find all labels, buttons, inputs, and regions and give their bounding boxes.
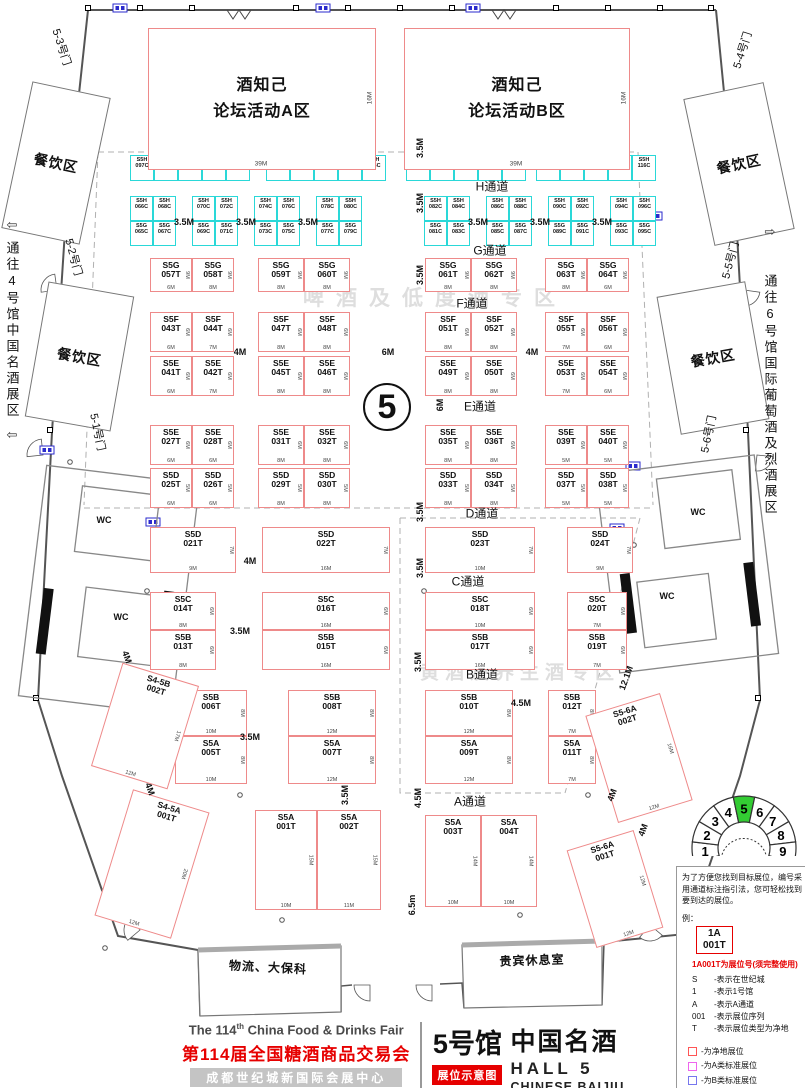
wc-label: WC [114,612,129,622]
spacing-label: 3.5M [340,785,350,805]
booth-s5h-074c: S5H074C [254,196,277,221]
booth-s5d-025t: S5D025T6M5M [150,468,192,508]
legend-definitions: S-表示在世纪城1-表示1号馆A-表示A通道001-表示展位序列T-表示展位类型… [682,974,805,1036]
legend-sample-booth: 1A 001T [696,926,733,954]
booth-s5f-056t: S5F056T6M6M [587,312,629,352]
legend-example-label: 例： [682,909,698,924]
booth-s5e-035t: S5E035T8M6M [425,425,471,465]
hall-subtitle-en: CHINESE BAIJIU [510,1080,624,1088]
spacing-label: 3.5M [415,265,425,285]
booth-s5g-093c: S5G093C [610,221,633,246]
fire-facility-marker-icon [40,446,54,454]
booth-s5a-004t: S5A004T10M14M [481,815,537,907]
spacing-label: 3.5M [415,193,425,213]
booth-s5h-094c: S5H094C [610,196,633,221]
spacing-label: 4.5M [511,698,531,708]
booth-s5c-016t: S5C016T16M6M [262,592,390,630]
locator-hall-number: 6 [756,805,763,820]
booth-s5f-047t: S5F047T8M6M [258,312,304,352]
spacing-label: 3.5M [174,217,194,227]
wc-label: WC [691,507,706,517]
booth-s5e-049t: S5E049T8M6M [425,356,471,396]
booth-s5h-082c: S5H082C [424,196,447,221]
spacing-label: 3.5M [592,217,612,227]
booth-s5f-051t: S5F051T8M6M [425,312,471,352]
booth-s5h-076c: S5H076C [277,196,300,221]
booth-s5e-054t: S5E054T6M6M [587,356,629,396]
booth-type-swatch [688,1076,697,1085]
spacing-label: 4M [244,556,257,566]
fire-facility-marker-icon [113,4,127,12]
booth-s5h-068c: S5H068C [153,196,176,221]
legend-def: 1-表示1号馆 [682,986,805,998]
booth-s5g-091c: S5G091C [571,221,594,246]
booth-s5d-034t: S5D034T8M5M [471,468,517,508]
booth-s5g-077c: S5G077C [316,221,339,246]
booth-s5f-043t: S5F043T6M6M [150,312,192,352]
door-swing-icon [416,985,432,1001]
vip-lounge-label: 贵宾休息室 [499,950,565,969]
spacing-label: 6.5m [407,895,417,916]
booth-s5f-044t: S5F044T7M6M [192,312,234,352]
booth-s5g-069c: S5G069C [192,221,215,246]
dim-label: 16M [621,92,628,105]
dim-label: 39M [510,161,523,168]
booth-s5h-116c: S5H116C [632,155,656,181]
locator-hall-number: 3 [712,814,719,829]
hall-category-cn: 中国名酒 [510,1022,624,1058]
spacing-label: 4.5M [413,788,423,808]
fire-facility-marker-icon [466,4,480,12]
booth-s5h-078c: S5H078C [316,196,339,221]
locator-hall-number: 8 [777,828,784,843]
aisle-h: H通道 [476,178,509,195]
booth-s5d-022t: S5D022T16M7M [262,527,390,573]
locator-hall-number: 5 [740,802,747,817]
booth-s5e-053t: S5E053T7M6M [545,356,587,396]
booth-s5h-092c: S5H092C [571,196,594,221]
locator-hall-number: 2 [703,828,710,843]
locator-hall-number: 9 [779,844,786,856]
booth-s5d-029t: S5D029T8M5M [258,468,304,508]
legend-intro: 为了方便您找到目标展位，编号采用通道标注指引法，您可轻松找到要到达的展位。 [682,872,805,907]
booth-s5g-062t: S5G062T8M9M [471,258,517,292]
booth-s5a-005t: S5A005T10M8M [175,736,247,784]
booth-s5e-032t: S5E032T8M6M [304,425,350,465]
spacing-label: 3.5M [415,138,425,158]
locator-hall-number: 4 [725,805,733,820]
title-divider [420,1022,422,1088]
forum-area: 酒知己论坛活动A区 [148,28,376,170]
booth-s5e-031t: S5E031T8M6M [258,425,304,465]
forum-area: 酒知己论坛活动B区 [404,28,630,170]
spacing-label: 3.5M [415,502,425,522]
booth-s5g-089c: S5G089C [548,221,571,246]
fair-title-cn: 第114届全国糖酒商品交易会 [182,1040,410,1065]
door-swing-icon [354,985,370,1001]
booth-s5g-095c: S5G095C [633,221,656,246]
booth-s5g-073c: S5G073C [254,221,277,246]
title-block: The 114th China Food & Drinks Fair 第114届… [182,1022,624,1088]
booth-s5d-023t: S5D023T10M7M [425,527,535,573]
booth-s5f-055t: S5F055T7M6M [545,312,587,352]
booth-s5a-011t: S5A011T7M8M [548,736,596,784]
spacing-label: 3.5M [230,626,250,636]
booth-s5g-059t: S5G059T8M9M [258,258,304,292]
booth-s5h-084c: S5H084C [447,196,470,221]
booth-s5d-030t: S5D030T8M5M [304,468,350,508]
booth-s5e-027t: S5E027T6M6M [150,425,192,465]
booth-s5b-010t: S5B010T12M8M [425,690,513,736]
booth-s5f-052t: S5F052T8M6M [471,312,517,352]
spacing-label: 4M [234,347,247,357]
hall-title-cn: 5号馆 [433,1022,502,1061]
booth-s5d-021t: S5D021T9M7M [150,527,236,573]
booth-s5g-071c: S5G071C [215,221,238,246]
spacing-label: 3.5M [413,652,423,672]
legend-type: -为A类标准展位 [682,1059,805,1073]
booth-s5f-048t: S5F048T8M6M [304,312,350,352]
booth-s5d-033t: S5D033T8M5M [425,468,471,508]
spacing-label: 6M [382,347,395,357]
booth-s5c-020t: S5C020T7M6M [567,592,627,630]
booth-s5g-087c: S5G087C [509,221,532,246]
booth-s5g-064t: S5G064T6M9M [587,258,629,292]
aisle-g: G通道 [473,242,506,259]
hall5-floor-plan: 5 123456789 为了方便您找到目标展位，编号采用通道标注指引法，您可轻松… [0,0,805,1088]
booth-s5e-028t: S5E028T6M6M [192,425,234,465]
booth-s5b-013t: S5B013T8M6M [150,630,216,670]
locator-hall-number: 1 [702,844,709,856]
arrow-left-icon: ⇦ [7,427,18,443]
booth-s5d-024t: S5D024T9M7M [567,527,633,573]
arrow-right-icon: ⇨ [765,224,776,240]
booth-s5g-060t: S5G060T8M9M [304,258,350,292]
fire-facility-marker-icon [316,4,330,12]
legend-type: -为净地展位 [682,1045,805,1059]
booth-s5a-003t: S5A003T10M14M [425,815,481,907]
spacing-label: 3.5M [240,732,260,742]
venue-name: 成都世纪城新国际会展中心 [190,1068,402,1087]
booth-s5a-009t: S5A009T12M8M [425,736,513,784]
booth-s5h-080c: S5H080C [339,196,362,221]
booth-s5g-081c: S5G081C [424,221,447,246]
fire-facility-marker-icon [146,518,160,526]
booth-s5b-019t: S5B019T7M6M [567,630,627,670]
legend-booth-types: -为净地展位-为A类标准展位-为B类标准展位-为C类标准展位-为D类标准展位 [682,1045,805,1088]
booth-s5d-026t: S5D026T6M5M [192,468,234,508]
booth-s5g-075c: S5G075C [277,221,300,246]
aisle-b: B通道 [466,666,498,683]
booth-s5e-045t: S5E045T8M6M [258,356,304,396]
legend-def: S-表示在世纪城 [682,974,805,986]
spacing-label: 3.5M [468,217,488,227]
plan-badge: 展位示意图 [432,1065,502,1085]
aisle-d: D通道 [466,505,499,522]
wc-label: WC [97,515,112,525]
booth-s5g-065c: S5G065C [130,221,153,246]
fair-title-en: The 114th China Food & Drinks Fair [189,1022,404,1037]
aisle-e: E通道 [464,398,496,415]
aisle-c: C通道 [452,573,485,590]
hall-number-circle: 5 [363,383,411,431]
spacing-label: 3.5M [530,217,550,227]
spacing-label: 3.5M [236,217,256,227]
spacing-label: 4M [526,347,539,357]
booth-s5e-046t: S5E046T8M6M [304,356,350,396]
arrow-left-icon: ⇦ [7,217,18,233]
booth-s5g-057t: S5G057T6M9M [150,258,192,292]
booth-s5h-070c: S5H070C [192,196,215,221]
booth-s5g-079c: S5G079C [339,221,362,246]
booth-s5e-040t: S5E040T5M6M [587,425,629,465]
dim-label: 39M [255,161,268,168]
legend-box: 为了方便您找到目标展位，编号采用通道标注指引法，您可轻松找到要到达的展位。 例：… [676,866,805,1088]
booth-s5g-083c: S5G083C [447,221,470,246]
booth-s5e-042t: S5E042T7M6M [192,356,234,396]
hall-title-en: HALL 5 [510,1059,624,1079]
booth-s5g-063t: S5G063T8M9M [545,258,587,292]
sample-line2: 001T [703,940,726,952]
booth-s5a-007t: S5A007T12M8M [288,736,376,784]
booth-s5e-039t: S5E039T5M6M [545,425,587,465]
booth-s5e-036t: S5E036T8M6M [471,425,517,465]
booth-s5d-038t: S5D038T5M5M [587,468,629,508]
corridor-to-hall6: 通往6号馆国际葡萄酒及烈酒展区 [761,274,780,516]
aisle-f: F通道 [456,295,487,312]
legend-note: 1A001T为展位号(须完整使用) [682,959,805,970]
spacing-label: 3.5M [415,558,425,578]
locator-hall-number: 7 [769,814,776,829]
booth-s5e-050t: S5E050T8M6M [471,356,517,396]
legend-def: 001-表示展位序列 [682,1011,805,1023]
spacing-label: 3.5M [298,217,318,227]
booth-s5a-001t: S5A001T10M15M [255,810,317,910]
booth-s5b-008t: S5B008T12M8M [288,690,376,736]
booth-s5c-018t: S5C018T10M6M [425,592,535,630]
booth-s5b-017t: S5B017T16M6M [425,630,535,670]
booth-s5d-037t: S5D037T5M5M [545,468,587,508]
booth-type-swatch [688,1062,697,1071]
booth-s5a-002t: S5A002T11M15M [317,810,381,910]
booth-s5g-061t: S5G061T8M9M [425,258,471,292]
booth-s5h-066c: S5H066C [130,196,153,221]
booth-s5h-088c: S5H088C [509,196,532,221]
booth-s5h-086c: S5H086C [486,196,509,221]
booth-type-swatch [688,1047,697,1056]
booth-s5h-072c: S5H072C [215,196,238,221]
booth-s5g-067c: S5G067C [153,221,176,246]
booth-s5h-090c: S5H090C [548,196,571,221]
legend-def: T-表示展位类型为净地 [682,1023,805,1035]
hall-locator-fan: 123456789 [684,784,804,856]
booth-s5h-096c: S5H096C [633,196,656,221]
booth-s5c-014t: S5C014T8M6M [150,592,216,630]
booth-s5e-041t: S5E041T6M6M [150,356,192,396]
wc-label: WC [660,591,675,601]
aisle-a: A通道 [454,793,486,810]
legend-type: -为B类标准展位 [682,1074,805,1088]
spacing-label: 6M [435,399,445,412]
dim-label: 16M [367,92,374,105]
corridor-to-hall4: 通往4号馆中国名酒展区 [3,241,22,419]
sample-line1: 1A [708,928,721,940]
booth-s5b-015t: S5B015T16M6M [262,630,390,670]
booth-s5g-058t: S5G058T8M9M [192,258,234,292]
legend-def: A-表示A通道 [682,999,805,1011]
